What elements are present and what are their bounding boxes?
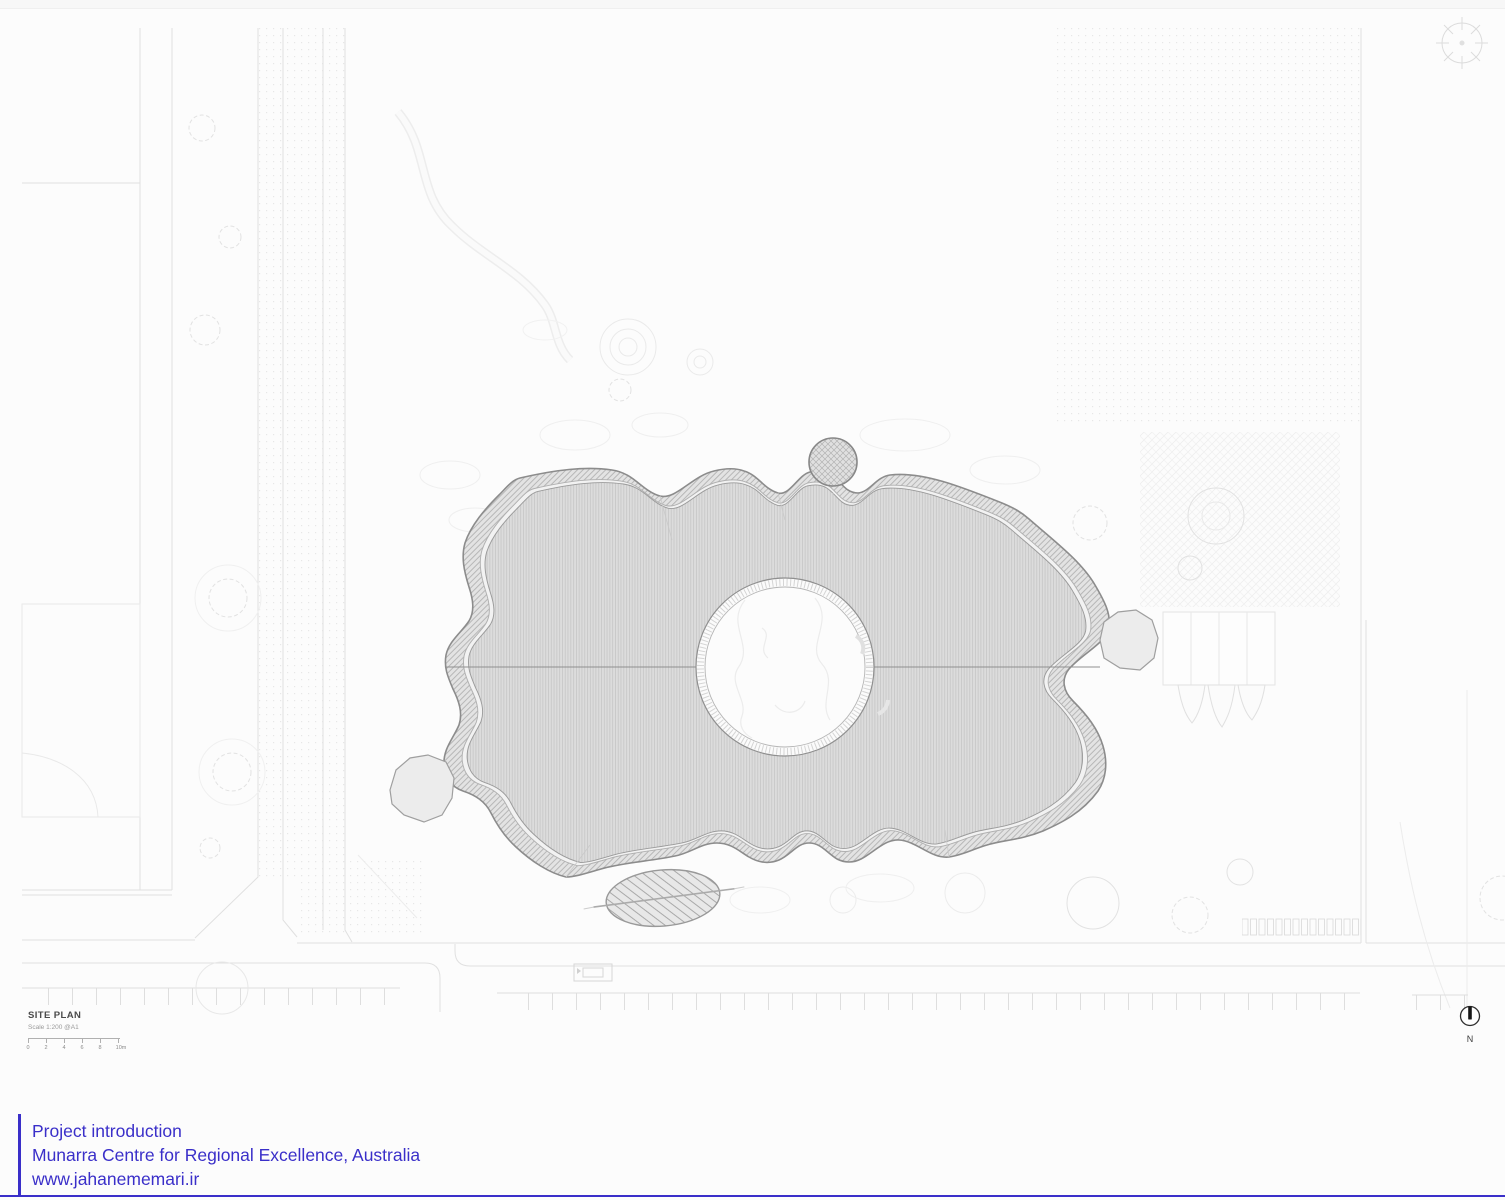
hatched-circle-garden <box>809 438 857 486</box>
caption-website: www.jahanememari.ir <box>32 1167 420 1191</box>
pergola-strip <box>1242 918 1361 936</box>
caption-heading: Project introduction <box>32 1119 420 1143</box>
leaf-planter <box>581 863 747 933</box>
title-block: SITE PLAN Scale 1:200 @A1 0 2 4 6 8 10m <box>28 1010 120 1053</box>
scale-label: 0 <box>19 1045 37 1051</box>
scale-label: 8 <box>91 1045 109 1051</box>
site-plan-sheet: SITE PLAN Scale 1:200 @A1 0 2 4 6 8 10m … <box>0 0 1505 1200</box>
drawing-scale-note: Scale 1:200 @A1 <box>28 1024 120 1031</box>
scale-tick <box>100 1039 101 1043</box>
clock-tree-symbol <box>1436 17 1488 69</box>
scale-bar: 0 2 4 6 8 10m <box>28 1038 120 1053</box>
site-plan-drawing <box>0 0 1505 1200</box>
caption-project: Munarra Centre for Regional Excellence, … <box>32 1143 420 1167</box>
parking-layer <box>22 918 1468 1010</box>
scale-tick <box>64 1039 65 1043</box>
scale-tick <box>82 1039 83 1043</box>
caption-block: Project introduction Munarra Centre for … <box>18 1114 420 1196</box>
scale-label: 2 <box>37 1045 55 1051</box>
scale-label: 4 <box>55 1045 73 1051</box>
canopy-strip <box>1163 612 1275 727</box>
footer-rule <box>0 1195 1505 1197</box>
north-indicator: N <box>1455 1003 1485 1044</box>
scale-tick <box>28 1039 29 1043</box>
scale-tick <box>118 1039 119 1043</box>
north-label: N <box>1455 1034 1485 1044</box>
north-arrow-icon <box>1457 1003 1483 1029</box>
bus-shelter-symbol <box>574 964 612 981</box>
drawing-title: SITE PLAN <box>28 1010 120 1021</box>
stone-blob-right <box>1100 610 1158 670</box>
scale-label: 6 <box>73 1045 91 1051</box>
stone-blob-left <box>390 755 454 822</box>
scale-tick <box>46 1039 47 1043</box>
scale-label: 10m <box>112 1045 130 1051</box>
